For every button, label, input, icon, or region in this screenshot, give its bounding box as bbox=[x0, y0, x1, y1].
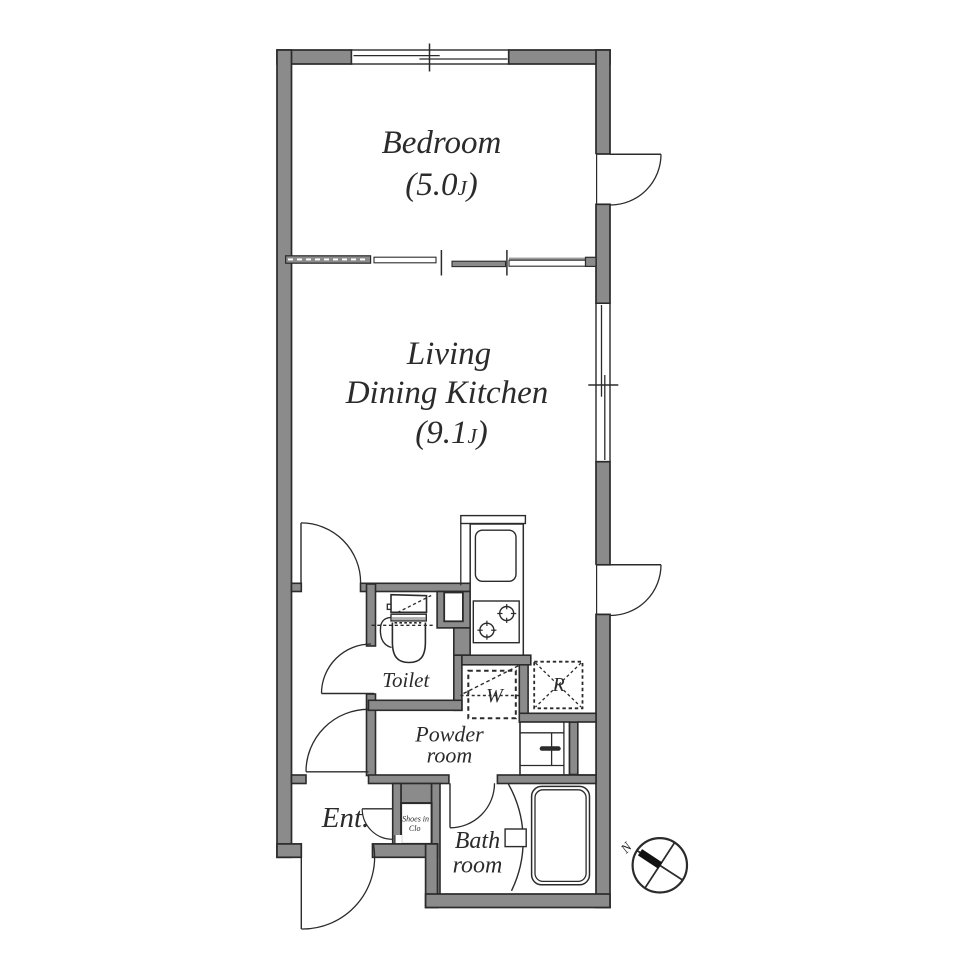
svg-text:R: R bbox=[552, 675, 565, 696]
svg-text:Bedroom: Bedroom bbox=[382, 125, 502, 161]
svg-text:Ent.: Ent. bbox=[321, 802, 370, 834]
svg-text:(9.1J): (9.1J) bbox=[415, 415, 488, 451]
svg-text:Dining Kitchen: Dining Kitchen bbox=[345, 375, 549, 411]
svg-text:Living: Living bbox=[406, 336, 491, 372]
svg-text:Toilet: Toilet bbox=[382, 668, 430, 692]
svg-text:Clo: Clo bbox=[409, 824, 421, 833]
svg-text:Shoes in: Shoes in bbox=[402, 815, 429, 824]
svg-text:(5.0J): (5.0J) bbox=[405, 167, 478, 203]
svg-text:room: room bbox=[453, 853, 503, 879]
svg-text:W: W bbox=[486, 685, 505, 707]
svg-text:room: room bbox=[427, 743, 473, 768]
svg-text:Bath: Bath bbox=[455, 828, 500, 854]
